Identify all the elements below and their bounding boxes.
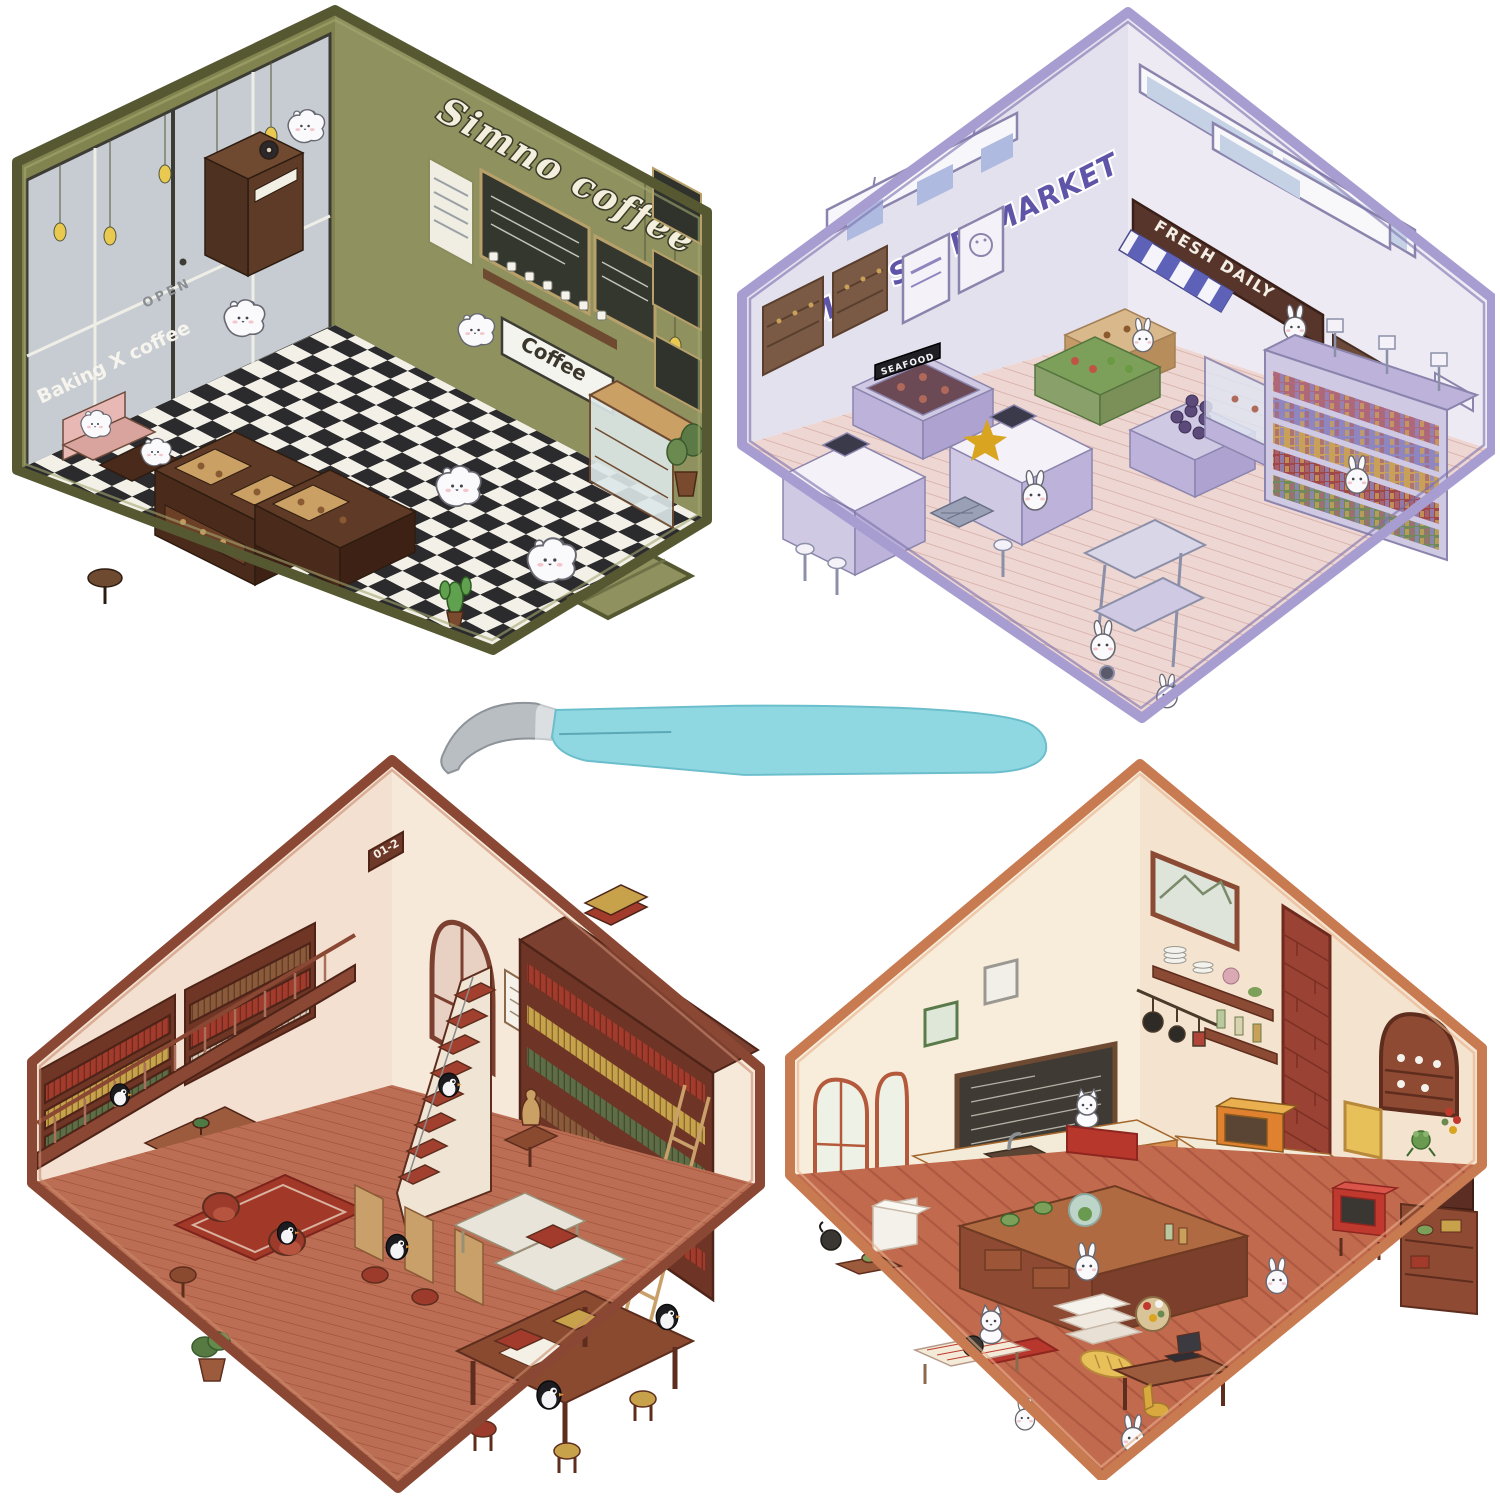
tweezers-tool (435, 685, 1060, 800)
bear-character (436, 466, 480, 506)
scene-bookstore: 01-2 (25, 755, 765, 1495)
cat-character (1076, 1089, 1098, 1128)
flower-basket (1136, 1297, 1170, 1331)
tweezers-handle (551, 699, 1047, 783)
armchair (203, 1193, 239, 1221)
door-handle (180, 259, 187, 266)
product-collage: OPEN Baking X coffee Simno coffee (0, 0, 1500, 1496)
bear-character (458, 314, 494, 347)
penguin-character (656, 1304, 680, 1329)
bear-character (224, 300, 264, 336)
small-round-table (88, 569, 122, 604)
cat-character (980, 1305, 1002, 1344)
piano-counter (205, 132, 303, 276)
scene-coffee-shop: OPEN Baking X coffee Simno coffee (5, 0, 720, 710)
white-frame (985, 960, 1017, 1004)
green-frame (925, 1002, 957, 1046)
bear-character (528, 538, 576, 582)
barista-bear (288, 110, 324, 143)
bear-character (141, 438, 171, 465)
yellow-frame (1345, 1102, 1381, 1158)
bear-character (81, 410, 111, 437)
books-on-top (585, 885, 647, 925)
scene-supermarket: SIMNO SUPERMARKET FRESH DAILY (735, 5, 1495, 730)
scene-kitchen (785, 758, 1490, 1480)
